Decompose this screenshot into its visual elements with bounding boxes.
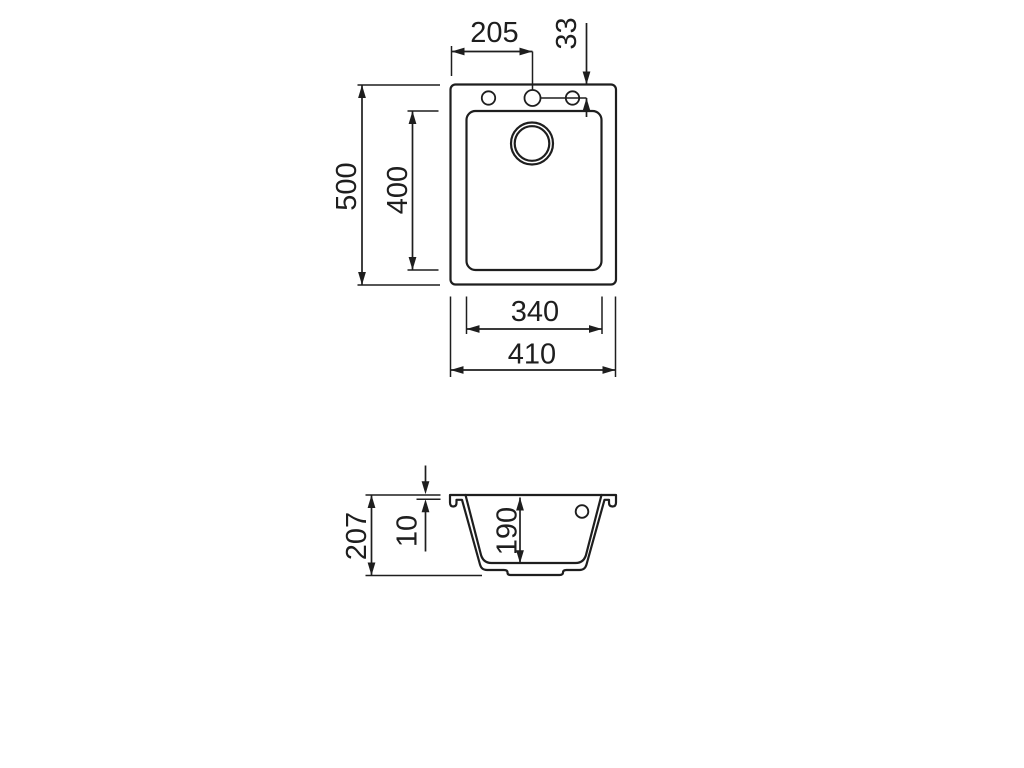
section-view: 207 10 190	[341, 466, 616, 576]
arrowhead-right	[603, 366, 616, 374]
drain-ring-outer	[511, 123, 553, 165]
arrowhead-up	[358, 85, 366, 98]
dim-bowl-width: 340	[467, 296, 603, 334]
arrowhead-left	[467, 325, 480, 333]
dim-label-410: 410	[508, 339, 556, 371]
dim-bowl-depth-plan: 400	[382, 111, 438, 270]
dim-label-207: 207	[341, 512, 373, 560]
sink-dimension-drawing: 205 33 500 400	[0, 0, 1024, 768]
arrowhead-down	[358, 272, 366, 285]
drain-ring-inner	[515, 126, 550, 161]
arrowhead-right	[520, 48, 533, 56]
faucet-hole-center	[525, 90, 541, 106]
dim-bowl-inner-depth: 190	[492, 498, 524, 564]
arrowhead-down	[409, 257, 417, 270]
arrowhead-down	[368, 563, 376, 576]
arrowhead-left	[452, 48, 465, 56]
sink-outline-plan	[451, 85, 617, 285]
arrowhead-up	[409, 111, 417, 124]
dim-label-190: 190	[492, 507, 524, 555]
dim-label-10: 10	[392, 515, 424, 547]
dim-rim-thickness: 10	[392, 466, 441, 552]
technical-drawing-page: 205 33 500 400	[0, 0, 1024, 768]
arrowhead-up	[422, 499, 430, 512]
dim-label-500: 500	[331, 162, 363, 210]
arrowhead-up	[583, 98, 591, 111]
arrowhead-down	[583, 72, 591, 85]
dim-label-400: 400	[382, 166, 414, 214]
arrowhead-down	[422, 481, 430, 494]
top-view: 205 33 500 400	[331, 17, 616, 377]
dim-faucet-offset-x: 205	[452, 17, 533, 90]
bowl-outline-plan	[467, 111, 602, 270]
dim-label-33: 33	[551, 17, 583, 49]
overflow-hole	[576, 505, 589, 518]
arrowhead-right	[589, 325, 602, 333]
dim-label-205: 205	[470, 17, 518, 49]
dim-faucet-offset-y: 33	[541, 17, 590, 117]
arrowhead-up	[368, 495, 376, 508]
faucet-hole-left	[482, 91, 495, 104]
arrowhead-left	[451, 366, 464, 374]
dim-label-340: 340	[511, 296, 559, 328]
